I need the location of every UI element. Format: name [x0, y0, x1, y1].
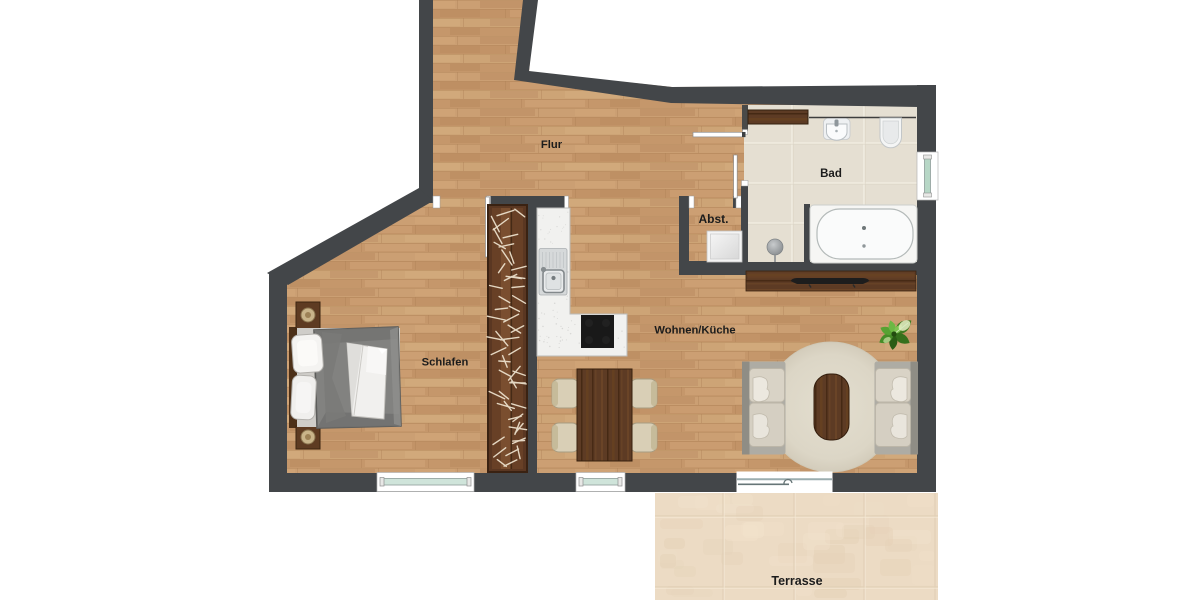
svg-text:Flur: Flur: [541, 139, 563, 151]
svg-text:Terrasse: Terrasse: [771, 574, 822, 588]
svg-text:Wohnen/Küche: Wohnen/Küche: [654, 325, 735, 337]
svg-text:Bad: Bad: [820, 168, 842, 180]
svg-text:Schlafen: Schlafen: [422, 357, 469, 369]
svg-text:Abst.: Abst.: [699, 212, 729, 226]
